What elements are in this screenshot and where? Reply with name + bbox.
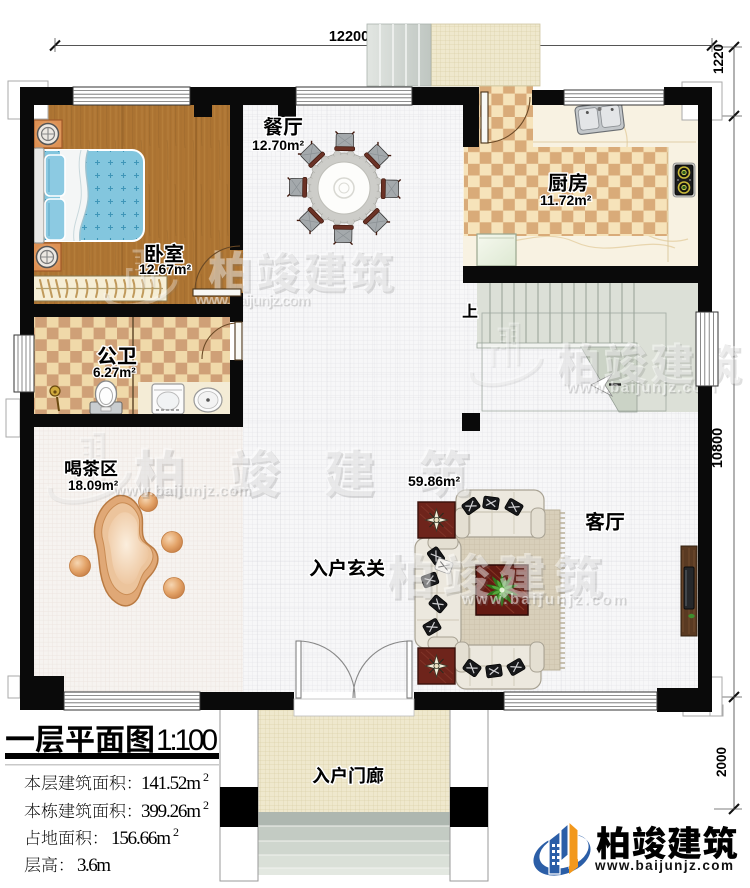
svg-text:12.67m²: 12.67m² xyxy=(139,261,191,277)
svg-text:399.26m: 399.26m xyxy=(141,801,201,822)
svg-text:1:100: 1:100 xyxy=(156,724,218,757)
svg-text:12200: 12200 xyxy=(329,29,369,45)
svg-text:2000: 2000 xyxy=(714,747,729,777)
svg-text:141.52m: 141.52m xyxy=(141,773,201,794)
svg-text:18.09m²: 18.09m² xyxy=(68,478,119,493)
svg-text:156.66m: 156.66m xyxy=(111,828,171,849)
svg-text:2: 2 xyxy=(203,798,209,812)
svg-text:12.70m²: 12.70m² xyxy=(252,137,304,153)
svg-text:10800: 10800 xyxy=(710,428,726,468)
svg-text:6.27m²: 6.27m² xyxy=(93,365,136,380)
svg-text:www.baijunjz.com: www.baijunjz.com xyxy=(565,379,716,396)
svg-text:2: 2 xyxy=(173,825,179,839)
svg-text:www.baijunjz.com: www.baijunjz.com xyxy=(112,482,251,499)
svg-text:59.86m²: 59.86m² xyxy=(408,473,460,489)
svg-text:1220: 1220 xyxy=(711,44,726,74)
svg-text:2: 2 xyxy=(203,770,209,784)
svg-text:11.72m²: 11.72m² xyxy=(540,192,592,208)
svg-text:3.6m: 3.6m xyxy=(77,855,111,876)
svg-text:www.baijunjz.com: www.baijunjz.com xyxy=(594,858,734,873)
